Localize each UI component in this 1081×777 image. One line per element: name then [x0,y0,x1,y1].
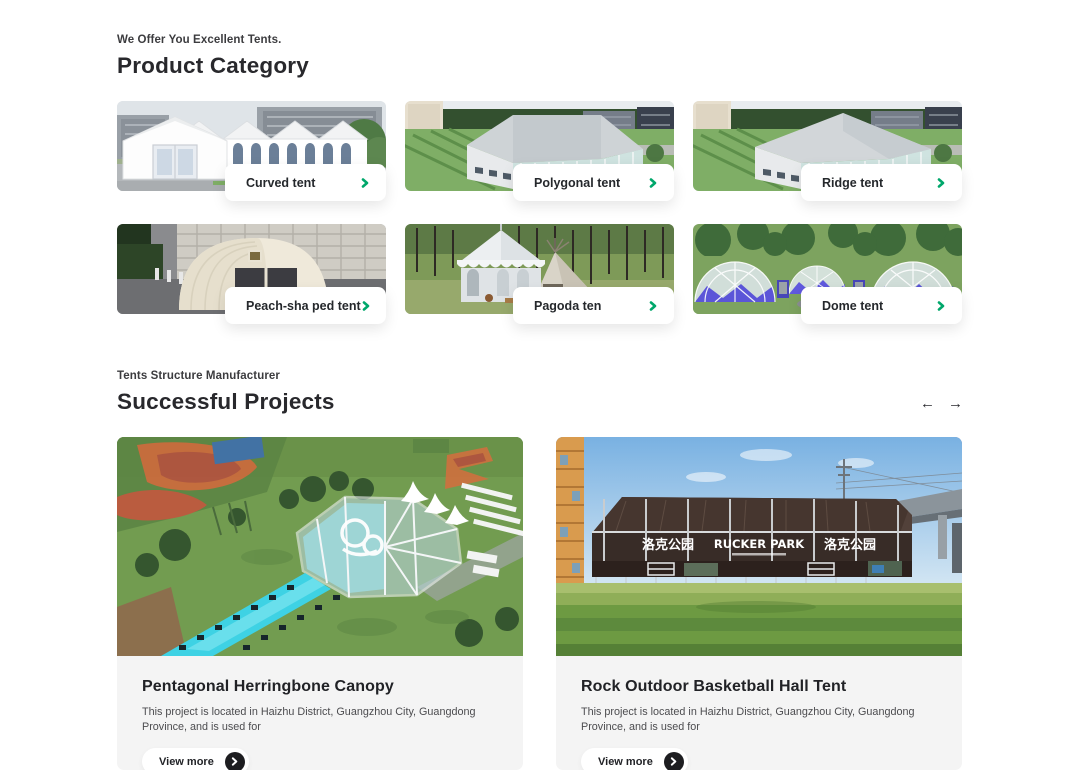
pentagonal-canopy-info: Pentagonal Herringbone Canopy This proje… [117,656,523,770]
basketball-hall-title: Rock Outdoor Basketball Hall Tent [581,678,938,696]
arrow-right-circle-icon [225,752,245,770]
project-card-basketball-hall[interactable]: 洛克公园 RUCKER PARK 洛克公园 [556,437,962,770]
category-tile-pagoda-tent[interactable]: Pagoda ten [405,224,674,324]
page-content: We Offer You Excellent Tents. Product Ca… [117,0,963,770]
project-card-pentagonal-canopy[interactable]: Pentagonal Herringbone Canopy This proje… [117,437,523,770]
projects-header: Tents Structure Manufacturer Successful … [117,370,963,415]
category-tile-peach-shaped-tent[interactable]: Peach-sha ped tent [117,224,386,324]
category-tile-dome-tent[interactable]: Dome tent [693,224,962,324]
category-grid: Curved tent [117,101,963,324]
chevron-right-icon [360,178,370,188]
product-category-section: We Offer You Excellent Tents. Product Ca… [117,34,963,324]
polygonal-tent-label: Polygonal tent [534,176,648,190]
ridge-tent-link[interactable]: Ridge tent [801,164,962,201]
chevron-right-icon [936,178,946,188]
projects-grid: Pentagonal Herringbone Canopy This proje… [117,437,963,770]
product-category-eyebrow: We Offer You Excellent Tents. [117,34,963,46]
pagoda-tent-label: Pagoda ten [534,299,648,313]
pentagonal-canopy-image[interactable] [117,437,523,656]
view-more-label: View more [159,756,214,768]
carousel-prev-arrow-icon[interactable]: ← [920,396,935,411]
pagoda-tent-link[interactable]: Pagoda ten [513,287,674,324]
pentagonal-canopy-title: Pentagonal Herringbone Canopy [142,678,499,696]
chevron-right-icon [361,301,371,311]
product-category-title: Product Category [117,53,963,79]
chevron-right-icon [936,301,946,311]
basketball-hall-info: Rock Outdoor Basketball Hall Tent This p… [556,656,962,770]
pentagonal-canopy-view-more-button[interactable]: View more [142,748,249,770]
peach-shaped-tent-label: Peach-sha ped tent [246,299,361,313]
arrow-right-circle-icon [664,752,684,770]
pentagonal-canopy-description: This project is located in Haizhu Distri… [142,705,499,734]
dome-tent-label: Dome tent [822,299,936,313]
projects-header-text: Tents Structure Manufacturer Successful … [117,370,335,415]
basketball-hall-view-more-button[interactable]: View more [581,748,688,770]
projects-eyebrow: Tents Structure Manufacturer [117,370,335,382]
category-tile-polygonal-tent[interactable]: Polygonal tent [405,101,674,201]
curved-tent-label: Curved tent [246,176,360,190]
dome-tent-link[interactable]: Dome tent [801,287,962,324]
signage-text-cn-left: 洛克公园 [642,537,694,553]
polygonal-tent-link[interactable]: Polygonal tent [513,164,674,201]
basketball-hall-description: This project is located in Haizhu Distri… [581,705,938,734]
curved-tent-link[interactable]: Curved tent [225,164,386,201]
ridge-tent-label: Ridge tent [822,176,936,190]
chevron-right-icon [648,178,658,188]
category-tile-curved-tent[interactable]: Curved tent [117,101,386,201]
basketball-hall-image[interactable]: 洛克公园 RUCKER PARK 洛克公园 [556,437,962,656]
carousel-next-arrow-icon[interactable]: → [948,396,963,411]
projects-title: Successful Projects [117,389,335,415]
peach-shaped-tent-link[interactable]: Peach-sha ped tent [225,287,386,324]
chevron-right-icon [648,301,658,311]
carousel-controls: ← → [920,396,963,415]
view-more-label: View more [598,756,653,768]
successful-projects-section: Tents Structure Manufacturer Successful … [117,370,963,770]
signage-text-cn-right: 洛克公园 [824,537,876,553]
category-tile-ridge-tent[interactable]: Ridge tent [693,101,962,201]
signage-text-rucker-park: RUCKER PARK [714,537,805,551]
